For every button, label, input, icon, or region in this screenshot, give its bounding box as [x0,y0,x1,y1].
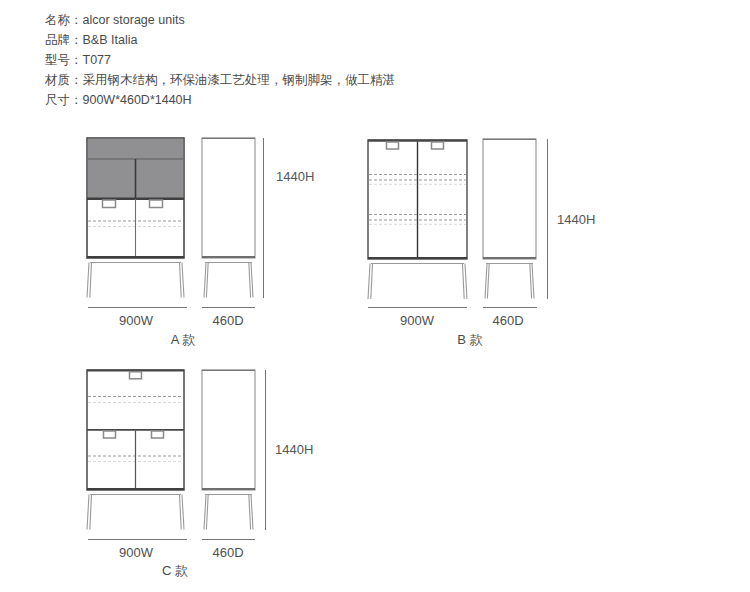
cabinet-side-body [483,139,536,259]
legs [368,264,467,300]
figure-b-front-view [367,139,470,302]
height-label-b: 1440H [557,212,595,227]
spec-line-dimension: 尺寸：900W*460D*1440H [45,90,395,110]
figure-b-side-view [482,138,539,303]
width-label-a: 900W [96,313,176,328]
depth-dimension-line-c [202,539,255,540]
figure-a-front-view [86,137,187,302]
door-handle [432,142,444,149]
door-handle [104,431,116,438]
depth-dimension-line-b [483,307,537,308]
variant-label-a: A 款 [143,331,223,349]
figure-c-front-view [86,369,187,534]
door-handle [387,142,399,149]
spec-line-material: 材质：采用钢木结构，环保油漆工艺处理，钢制脚架，做工精湛 [45,70,395,90]
variant-label-c: C 款 [135,562,215,580]
height-dimension-line-b [547,139,548,299]
figure-a-side-view [201,137,258,302]
legs [485,264,534,299]
legs [87,495,184,530]
height-label-c: 1440H [275,442,313,457]
door-handle [150,200,163,208]
cabinet-side-body [202,138,255,258]
door-handle [130,372,142,379]
width-label-c: 900W [96,545,176,560]
width-label-b: 900W [377,313,457,328]
legs [204,495,253,530]
width-dimension-line-b [368,307,467,308]
door-handle [152,431,164,438]
variant-label-b: B 款 [430,331,510,349]
width-dimension-line-c [88,539,187,540]
depth-label-c: 460D [188,545,268,560]
legs [204,263,253,298]
legs [87,263,184,298]
door-handle [103,200,116,208]
product-specs: 名称：alcor storage units 品牌：B&B Italia 型号：… [45,10,395,110]
spec-line-name: 名称：alcor storage units [45,10,395,30]
height-dimension-line-c [265,370,266,530]
depth-label-b: 460D [468,313,548,328]
height-label-a: 1440H [276,169,314,184]
cabinet-side-body [202,370,255,490]
depth-label-a: 460D [188,313,268,328]
figure-c-side-view [201,369,258,534]
spec-line-model: 型号：T077 [45,50,395,70]
spec-line-brand: 品牌：B&B Italia [45,30,395,50]
height-dimension-line-a [263,138,264,298]
width-dimension-line-a [88,307,187,308]
depth-dimension-line-a [202,307,255,308]
product-spec-sheet: 名称：alcor storage units 品牌：B&B Italia 型号：… [0,0,750,592]
